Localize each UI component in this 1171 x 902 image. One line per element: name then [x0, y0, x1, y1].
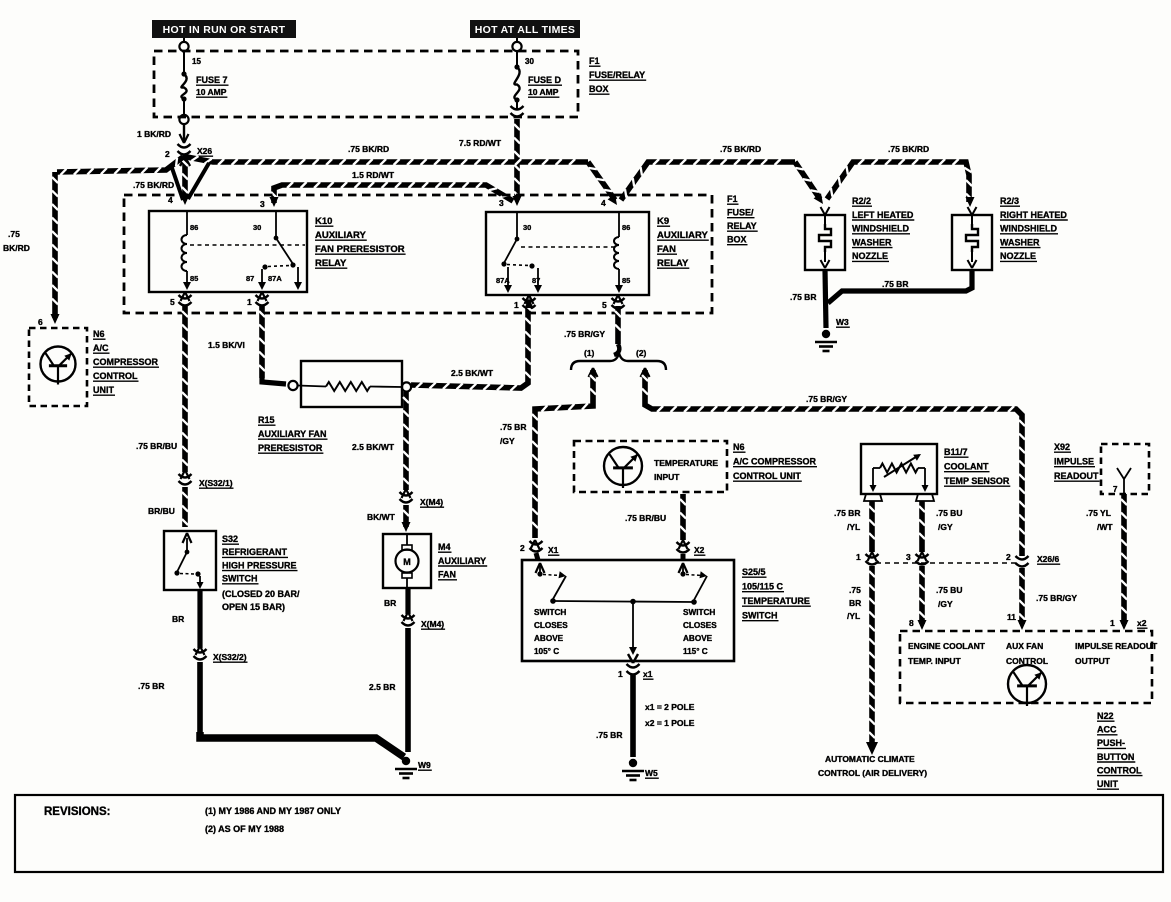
svg-text:/YL: /YL — [847, 522, 860, 532]
svg-text:FAN: FAN — [657, 244, 676, 255]
svg-text:K9: K9 — [657, 216, 669, 227]
svg-text:N6: N6 — [733, 442, 745, 452]
svg-text:2: 2 — [165, 149, 170, 159]
svg-text:INPUT: INPUT — [654, 472, 680, 482]
svg-text:BR: BR — [849, 598, 861, 608]
svg-text:RELAY: RELAY — [657, 258, 689, 269]
svg-text:READOUT: READOUT — [1054, 471, 1099, 481]
svg-text:RELAY: RELAY — [315, 258, 347, 269]
svg-text:11: 11 — [1007, 612, 1016, 622]
svg-text:(2) AS OF MY 1988: (2) AS OF MY 1988 — [205, 824, 284, 834]
svg-text:WINDSHIELD: WINDSHIELD — [1000, 224, 1057, 234]
svg-text:x2 = 1 POLE: x2 = 1 POLE — [645, 718, 695, 728]
svg-text:PUSH-: PUSH- — [1097, 738, 1125, 748]
svg-text:WINDSHIELD: WINDSHIELD — [852, 224, 909, 234]
svg-text:R2/3: R2/3 — [1000, 196, 1019, 206]
svg-text:5: 5 — [602, 300, 607, 310]
svg-text:AUXILIARY: AUXILIARY — [315, 230, 367, 241]
svg-text:.75 BR: .75 BR — [138, 681, 164, 691]
svg-text:A/C: A/C — [93, 343, 109, 353]
svg-text:.75 BU: .75 BU — [936, 585, 962, 595]
svg-text:X(M4): X(M4) — [421, 619, 444, 629]
svg-text:30: 30 — [253, 223, 261, 232]
svg-text:OPEN 15 BAR): OPEN 15 BAR) — [222, 602, 285, 612]
svg-text:W3: W3 — [836, 317, 849, 327]
svg-text:87A: 87A — [268, 274, 282, 283]
svg-text:2.5 BK/WT: 2.5 BK/WT — [451, 368, 494, 378]
svg-text:TEMPERATURE: TEMPERATURE — [654, 458, 718, 468]
svg-text:FUSE/RELAY: FUSE/RELAY — [589, 70, 645, 80]
svg-text:CONTROL: CONTROL — [1097, 765, 1142, 775]
svg-text:.75 BR: .75 BR — [834, 508, 860, 518]
svg-text:2.5 BR: 2.5 BR — [369, 682, 395, 692]
svg-text:F1: F1 — [727, 194, 738, 204]
svg-text:HIGH PRESSURE: HIGH PRESSURE — [222, 560, 297, 570]
svg-text:.75 BR: .75 BR — [882, 279, 908, 289]
svg-text:/GY: /GY — [938, 599, 953, 609]
svg-text:PRERESISTOR: PRERESISTOR — [258, 443, 323, 453]
svg-text:1 BK/RD: 1 BK/RD — [137, 129, 171, 139]
svg-text:HOT IN RUN OR START: HOT IN RUN OR START — [163, 24, 286, 36]
svg-text:(2): (2) — [636, 348, 647, 358]
svg-text:FUSE 7: FUSE 7 — [196, 75, 228, 85]
svg-text:NOZZLE: NOZZLE — [852, 251, 888, 261]
svg-text:/GY: /GY — [938, 522, 953, 532]
svg-text:7.5 RD/WT: 7.5 RD/WT — [459, 138, 502, 148]
svg-text:7: 7 — [1113, 485, 1118, 494]
svg-text:W9: W9 — [418, 760, 431, 770]
svg-text:(CLOSED 20 BAR/: (CLOSED 20 BAR/ — [222, 589, 300, 599]
svg-text:ABOVE: ABOVE — [683, 634, 713, 643]
svg-text:X(M4): X(M4) — [420, 497, 443, 507]
svg-text:TEMP SENSOR: TEMP SENSOR — [944, 476, 1010, 486]
svg-text:OUTPUT: OUTPUT — [1075, 656, 1111, 666]
svg-text:BOX: BOX — [589, 84, 609, 94]
svg-text:87: 87 — [246, 274, 254, 283]
svg-text:AUXILIARY: AUXILIARY — [657, 230, 709, 241]
svg-text:AUTOMATIC CLIMATE: AUTOMATIC CLIMATE — [825, 754, 915, 764]
svg-text:IMPULSE READOUT: IMPULSE READOUT — [1075, 641, 1158, 651]
svg-text:M: M — [403, 557, 411, 567]
svg-text:.75 BR: .75 BR — [500, 422, 526, 432]
svg-text:.75 YL: .75 YL — [1086, 508, 1111, 518]
svg-text:R2/2: R2/2 — [852, 196, 871, 206]
svg-text:IMPULSE: IMPULSE — [1054, 457, 1094, 467]
svg-text:1: 1 — [247, 297, 252, 307]
svg-text:SWITCH: SWITCH — [742, 611, 778, 621]
svg-text:.75 BK/RD: .75 BK/RD — [888, 144, 929, 154]
svg-text:BR: BR — [384, 598, 396, 608]
svg-text:NOZZLE: NOZZLE — [1000, 251, 1036, 261]
svg-text:X92: X92 — [1054, 442, 1070, 452]
svg-text:AUXILIARY: AUXILIARY — [438, 556, 486, 566]
svg-text:1.5 BK/VI: 1.5 BK/VI — [208, 340, 245, 350]
svg-text:2: 2 — [520, 543, 525, 553]
svg-text:85: 85 — [622, 276, 630, 285]
svg-text:x1: x1 — [643, 669, 653, 679]
svg-text:UNIT: UNIT — [1097, 779, 1118, 789]
svg-text:X26/6: X26/6 — [1037, 554, 1059, 564]
svg-text:BK/RD: BK/RD — [3, 243, 30, 253]
svg-text:105/115 C: 105/115 C — [742, 582, 784, 592]
svg-text:LEFT HEATED: LEFT HEATED — [852, 210, 914, 220]
svg-text:AUXILIARY FAN: AUXILIARY FAN — [258, 429, 327, 439]
svg-text:1: 1 — [856, 552, 861, 562]
svg-text:8: 8 — [909, 618, 914, 628]
svg-text:CLOSES: CLOSES — [683, 621, 717, 630]
svg-text:CONTROL (AIR DELIVERY): CONTROL (AIR DELIVERY) — [818, 768, 927, 778]
svg-text:BOX: BOX — [727, 235, 747, 245]
svg-text:/GY: /GY — [500, 436, 515, 446]
svg-text:.75 BK/RD: .75 BK/RD — [348, 144, 389, 154]
svg-text:WASHER: WASHER — [1000, 237, 1040, 247]
svg-text:.75 BK/RD: .75 BK/RD — [720, 144, 761, 154]
svg-text:1.5 RD/WT: 1.5 RD/WT — [352, 170, 395, 180]
svg-text:/YL: /YL — [847, 611, 860, 621]
svg-text:.75 BR: .75 BR — [790, 292, 816, 302]
svg-text:M4: M4 — [438, 542, 451, 552]
svg-text:x2: x2 — [1137, 618, 1147, 628]
svg-text:BR: BR — [172, 614, 184, 624]
svg-text:RIGHT HEATED: RIGHT HEATED — [1000, 210, 1067, 220]
svg-text:N6: N6 — [93, 329, 105, 339]
svg-text:.75 BR/GY: .75 BR/GY — [564, 329, 605, 339]
svg-text:2: 2 — [1006, 552, 1011, 562]
svg-text:SWITCH: SWITCH — [534, 608, 566, 617]
svg-text:UNIT: UNIT — [93, 385, 114, 395]
svg-text:.75 BR/GY: .75 BR/GY — [806, 394, 847, 404]
svg-text:R15: R15 — [258, 415, 275, 425]
svg-text:.75 BR/BU: .75 BR/BU — [625, 513, 666, 523]
svg-text:COMPRESSOR: COMPRESSOR — [93, 357, 159, 367]
svg-text:WASHER: WASHER — [852, 237, 892, 247]
svg-text:K10: K10 — [315, 216, 332, 227]
svg-text:CONTROL UNIT: CONTROL UNIT — [733, 471, 801, 481]
svg-text:4: 4 — [168, 195, 173, 205]
svg-text:x1 = 2 POLE: x1 = 2 POLE — [645, 702, 695, 712]
svg-text:4: 4 — [601, 198, 606, 208]
svg-text:N22: N22 — [1097, 711, 1114, 721]
svg-text:5: 5 — [170, 297, 175, 307]
svg-text:HOT AT ALL TIMES: HOT AT ALL TIMES — [475, 24, 575, 36]
svg-text:COOLANT: COOLANT — [944, 462, 989, 472]
svg-text:1: 1 — [618, 669, 623, 679]
svg-text:30: 30 — [525, 57, 534, 66]
svg-text:ABOVE: ABOVE — [534, 634, 564, 643]
svg-text:ACC: ACC — [1097, 725, 1117, 735]
svg-text:86: 86 — [190, 223, 198, 232]
svg-text:RELAY: RELAY — [727, 221, 757, 231]
svg-text:(1) MY 1986 AND MY 1987 ONLY: (1) MY 1986 AND MY 1987 ONLY — [205, 806, 341, 816]
svg-text:FUSE/: FUSE/ — [727, 208, 754, 218]
svg-text:BK/WT: BK/WT — [367, 512, 396, 522]
svg-text:X2: X2 — [694, 545, 705, 555]
svg-text:.75 BK/RD: .75 BK/RD — [133, 180, 174, 190]
svg-text:115° C: 115° C — [683, 647, 708, 656]
svg-text:A/C COMPRESSOR: A/C COMPRESSOR — [733, 457, 817, 467]
svg-text:87A: 87A — [496, 276, 510, 285]
svg-text:REVISIONS:: REVISIONS: — [44, 806, 110, 818]
svg-text:TEMPERATURE: TEMPERATURE — [742, 596, 810, 606]
svg-text:3: 3 — [260, 199, 265, 209]
svg-text:ENGINE COOLANT: ENGINE COOLANT — [908, 641, 986, 651]
svg-text:FAN: FAN — [438, 570, 456, 580]
svg-text:85: 85 — [190, 274, 198, 283]
svg-text:X(S32/1): X(S32/1) — [199, 478, 233, 488]
svg-text:.75 BR: .75 BR — [596, 730, 622, 740]
svg-text:3: 3 — [906, 552, 911, 562]
svg-text:X26: X26 — [197, 146, 212, 156]
svg-text:(1): (1) — [584, 348, 595, 358]
svg-text:X1: X1 — [548, 545, 559, 555]
svg-text:X(S32/2): X(S32/2) — [213, 652, 247, 662]
svg-text:SWITCH: SWITCH — [222, 574, 258, 584]
svg-text:87: 87 — [532, 276, 540, 285]
svg-text:REFRIGERANT: REFRIGERANT — [222, 547, 288, 557]
svg-text:CLOSES: CLOSES — [534, 621, 568, 630]
svg-text:2.5 BK/WT: 2.5 BK/WT — [352, 442, 395, 452]
svg-text:.75: .75 — [849, 585, 861, 595]
svg-text:86: 86 — [622, 223, 630, 232]
svg-text:FAN PRERESISTOR: FAN PRERESISTOR — [315, 244, 405, 255]
svg-text:SWITCH: SWITCH — [683, 608, 715, 617]
svg-text:3: 3 — [499, 198, 504, 208]
svg-text:S32: S32 — [222, 534, 238, 544]
svg-text:FUSE D: FUSE D — [528, 75, 562, 85]
svg-text:10 AMP: 10 AMP — [528, 87, 559, 97]
svg-text:W5: W5 — [645, 768, 658, 778]
svg-text:15: 15 — [192, 57, 201, 66]
svg-text:CONTROL: CONTROL — [93, 371, 138, 381]
svg-text:AUX FAN: AUX FAN — [1006, 641, 1043, 651]
svg-text:TEMP. INPUT: TEMP. INPUT — [908, 656, 962, 666]
svg-text:10 AMP: 10 AMP — [196, 87, 227, 97]
svg-text:.75 BR/GY: .75 BR/GY — [1036, 593, 1077, 603]
svg-text:BUTTON: BUTTON — [1097, 752, 1134, 762]
svg-text:30: 30 — [523, 223, 531, 232]
svg-text:105° C: 105° C — [534, 647, 559, 656]
svg-text:1: 1 — [514, 300, 519, 310]
svg-text:6: 6 — [38, 317, 43, 327]
svg-text:BR/BU: BR/BU — [148, 506, 175, 516]
svg-text:1: 1 — [1110, 618, 1115, 628]
svg-text:S25/5: S25/5 — [742, 567, 766, 577]
svg-text:.75: .75 — [8, 229, 20, 239]
svg-text:/WT: /WT — [1097, 522, 1113, 532]
svg-text:B11/7: B11/7 — [944, 447, 968, 457]
svg-text:.75 BR/BU: .75 BR/BU — [136, 441, 177, 451]
svg-text:.75 BU: .75 BU — [936, 508, 962, 518]
svg-text:F1: F1 — [589, 56, 600, 66]
